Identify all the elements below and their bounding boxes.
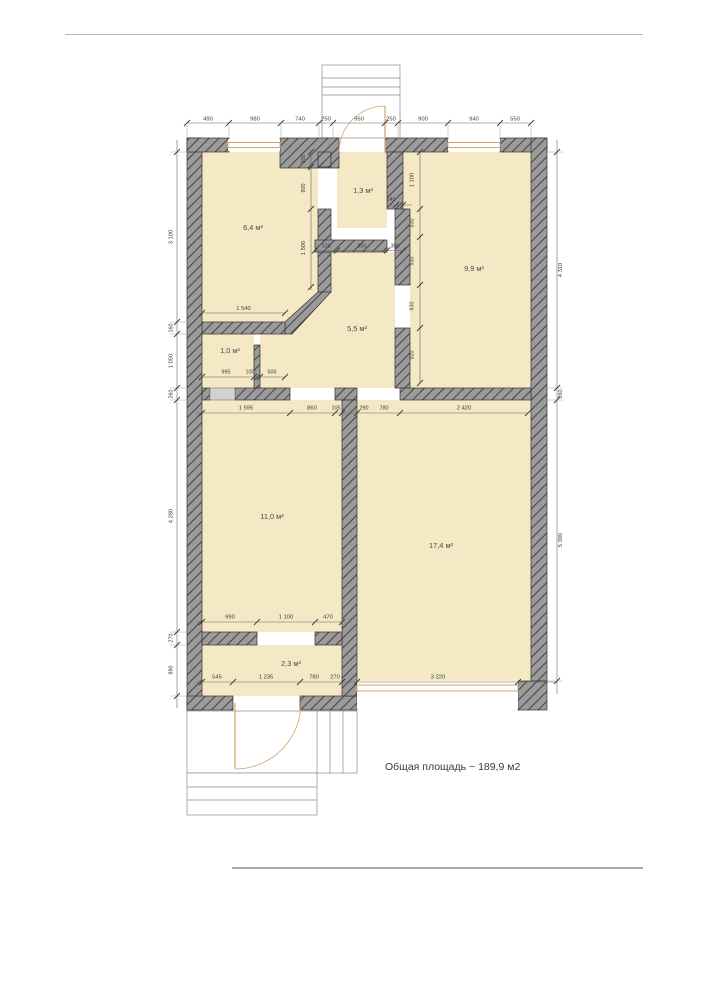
dim-label: 1 500 [301,241,307,256]
dim-label: 4 280 [169,509,175,524]
dim-label: 470 [323,615,333,621]
room-23-floor [202,645,342,696]
dim-label: 930 [410,257,416,266]
dim-label: 900 [418,117,428,123]
dim-labels-left: 3 100 160 1 050 260 4 280 270 890 [169,230,175,675]
room-10-floor [202,334,254,388]
room-area-label: 2,3 м² [281,659,301,668]
dim-label: 1 100 [410,173,416,188]
dim-labels-right: 4 310 260 5 390 [558,263,564,548]
wall-room64-bottom [202,322,285,334]
wall-room110-bottom-a [202,632,257,645]
wall-midband-a [202,388,210,400]
dim-label: 995 [222,370,231,376]
dim-label: 1 540 [236,306,251,312]
wall-midband-c [335,388,357,400]
room-area-label: 1,3 м² [353,186,373,195]
dim-label: 860 [307,406,317,412]
room-area-label: 5,5 м² [347,324,367,333]
dim-label: 740 [295,117,305,123]
dim-label: 270 [169,634,175,643]
wall-right [531,138,547,681]
dim-label: 550 [510,117,520,123]
dim-label: 1 595 [239,406,254,412]
room-area-label: 17,4 м² [429,541,454,550]
dim-label: 890 [169,666,175,675]
dim-label: 290 [360,406,369,412]
dim-label: 545 [212,675,222,681]
window-room64 [228,139,280,151]
dim-label: 940 [469,117,479,123]
dim-label: 250 [321,117,331,123]
wall-partition10 [254,345,260,388]
wall-99-b [395,328,410,388]
dim-label: 4 310 [558,263,564,278]
wall-partition64-c [318,252,331,292]
dim-label: 1 235 [259,675,274,681]
room-area-label: 11,0 м² [260,512,284,521]
entrance-porch-top [322,65,400,138]
dim-label: 950 [354,117,364,123]
drawing-sheet: 490 980 740 250 950 250 900 940 550 3 10… [0,0,707,1000]
dim-label: 990 [225,615,235,621]
dim-label: 530 [410,219,416,228]
dim-label: 105 [332,406,341,412]
dim-labels-room10: 995 100 500 [222,370,277,376]
wall-corner-post [518,681,547,710]
total-area-label: Общая площадь ~ 189,9 м2 [385,761,520,773]
wall-bottom-seg1 [187,696,233,710]
dim-label: 780 [380,406,389,412]
dim-label: 920 [410,351,416,360]
dim-label: 490 [203,117,213,123]
wall-midband-d [400,388,531,400]
wall-top-seg3 [385,138,448,152]
dim-label: 325 [322,244,331,250]
dim-label: 5 390 [558,533,564,548]
wall-partition64-a [318,152,331,167]
wall-top-seg1 [187,138,229,152]
dim-label: 250 [386,117,396,123]
dim-label: 3 100 [169,230,175,245]
dim-label: 3 220 [431,675,446,681]
room-floors [202,152,531,696]
dim-label: 800 [301,184,307,193]
window-room99 [448,139,500,151]
dim-label: 2 420 [457,406,472,412]
room-64-floor [202,152,318,322]
entrance-porch-bottom [187,711,357,815]
wall-midband-b [235,388,290,400]
wall-bottom-seg2 [300,696,357,710]
room-area-label: 1,0 м² [220,346,240,355]
dim-label: 1 050 [169,354,175,369]
dim-label: 100 [246,370,255,376]
dim-label: 160 [169,324,175,333]
dim-label: 830 [410,302,416,311]
dim-label: 780 [309,675,319,681]
dim-label: 980 [250,117,260,123]
room-area-label: 6,4 м² [243,223,263,232]
floor-plan-drawing: 490 980 740 250 950 250 900 940 550 3 10… [0,0,707,1000]
dim-label: 260 [169,390,175,399]
dim-label: 300 [301,155,307,164]
dim-label: 300 [391,244,400,250]
dim-label: 270 [330,675,340,681]
room-area-label: 9,9 м² [464,264,484,273]
dim-labels-top: 490 980 740 250 950 250 900 940 550 [203,117,520,123]
dim-label: 1 100 [279,615,294,621]
wall-middle-vertical [342,400,357,696]
window-room174 [357,681,518,709]
dim-label: 260 [558,390,564,399]
wall-niche [210,388,235,400]
dim-label: 950 [358,244,367,250]
dim-label: 140 [387,197,396,203]
wall-room110-bottom-b [315,632,342,645]
dim-label: 500 [268,370,277,376]
